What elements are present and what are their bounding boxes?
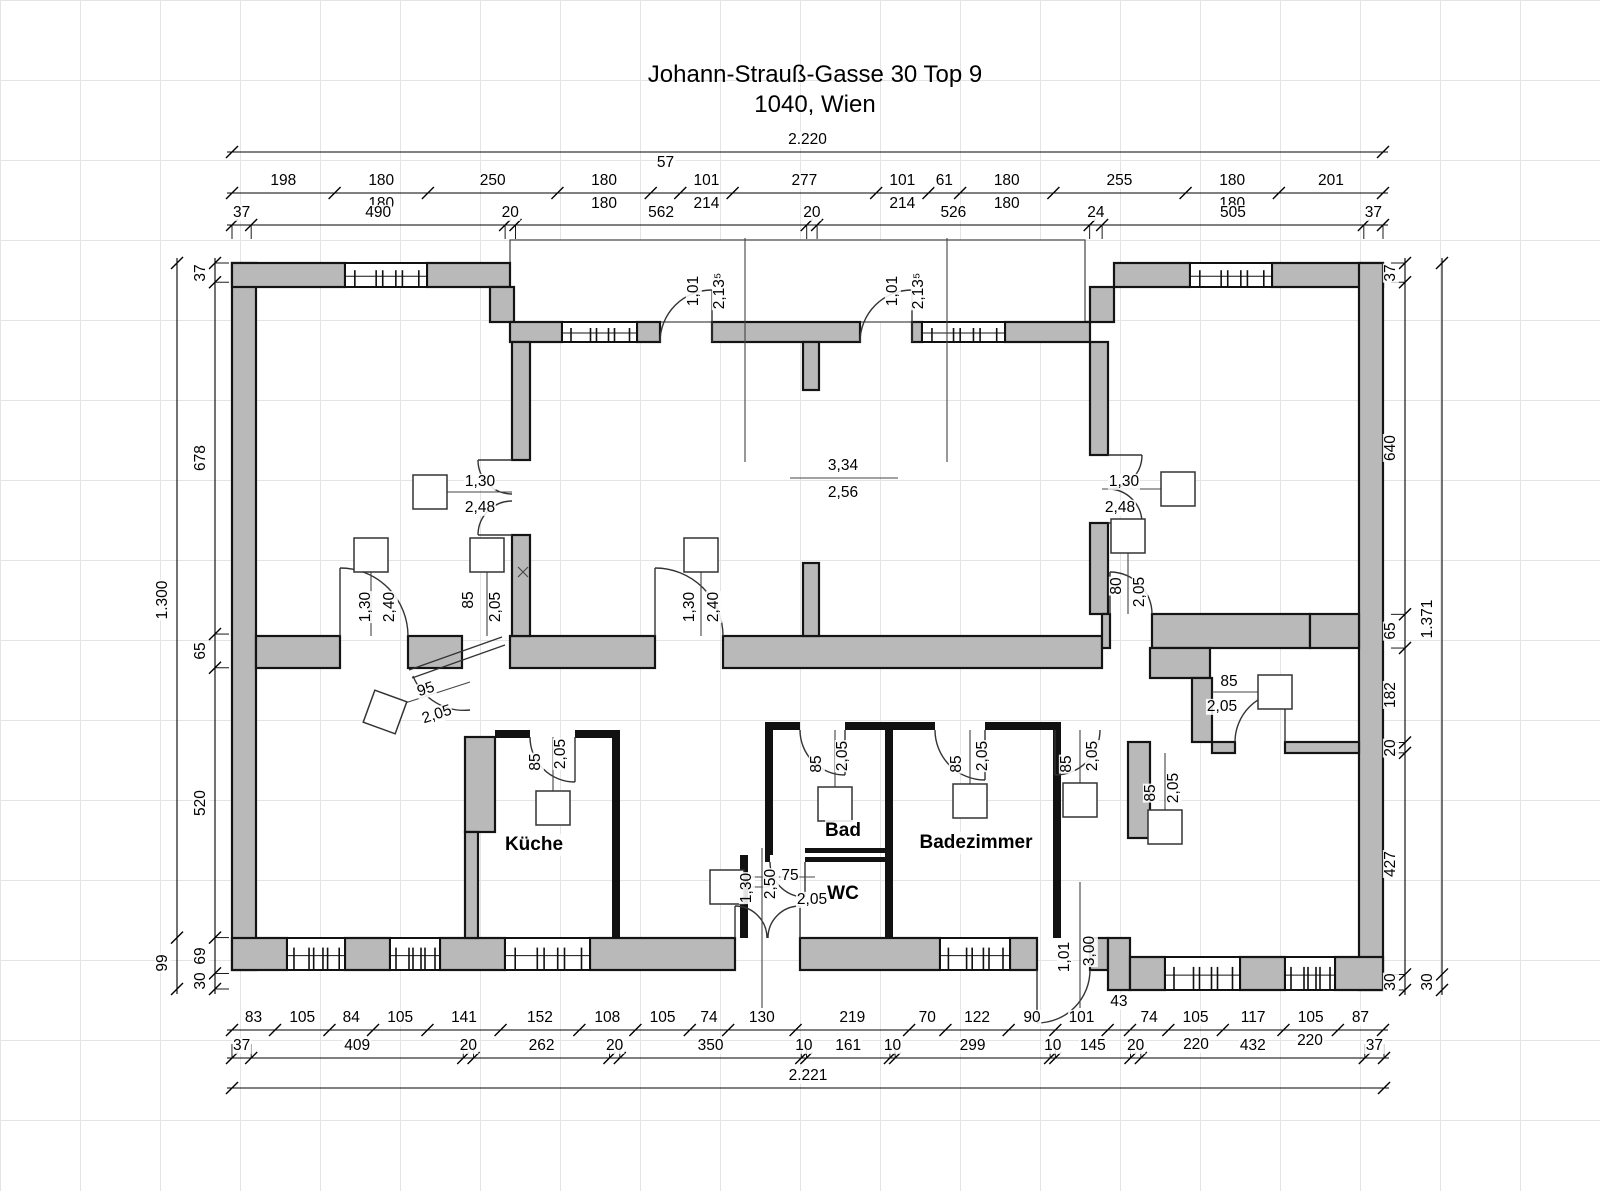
door-symbol-squares-layer bbox=[354, 472, 1292, 904]
annotation-label: 2,05 bbox=[975, 740, 991, 772]
annotation-label: 2,05 bbox=[1085, 740, 1101, 772]
dimension-label: 427 bbox=[1383, 850, 1399, 878]
annotation-label: 2,50 bbox=[763, 868, 779, 900]
door-symbol-square bbox=[413, 475, 447, 509]
dimension-label: 74 bbox=[1140, 1010, 1159, 1026]
annotation-label: 220 bbox=[1296, 1033, 1324, 1049]
dimension-label: 10 bbox=[883, 1038, 902, 1054]
dimension-label: 250 bbox=[479, 173, 507, 189]
dimension-label: 20 bbox=[1126, 1038, 1145, 1054]
dimension-label: 70 bbox=[918, 1010, 937, 1026]
dimension-label: 90 bbox=[1022, 1010, 1041, 1026]
dimension-label: 108 bbox=[593, 1010, 621, 1026]
dimension-label: 180 bbox=[367, 173, 395, 189]
annotation-label: 80 bbox=[1109, 576, 1125, 595]
annotation-label: 1,01 bbox=[1057, 941, 1073, 973]
dimension-label: 490 bbox=[364, 205, 392, 221]
annotation-label: 1,30 bbox=[358, 591, 374, 623]
window-symbol bbox=[390, 938, 440, 970]
door-symbol-square bbox=[1111, 519, 1145, 553]
annotation-label: 85 bbox=[528, 752, 544, 771]
dimension-label: 432 bbox=[1239, 1038, 1267, 1054]
dimension-label: 105 bbox=[1182, 1010, 1210, 1026]
annotation-label: 2,05 bbox=[1166, 772, 1182, 804]
annotation-label: 2,48 bbox=[464, 500, 496, 516]
door-symbol-square bbox=[1148, 810, 1182, 844]
room-label: Küche bbox=[505, 834, 563, 856]
dimension-label: 105 bbox=[649, 1010, 677, 1026]
annotation-label: 85 bbox=[1143, 783, 1159, 802]
door-swing bbox=[768, 906, 800, 938]
dimension-label: 122 bbox=[963, 1010, 991, 1026]
dimension-label: 30 bbox=[1420, 973, 1436, 992]
dimension-label: 57 bbox=[656, 155, 675, 171]
annotation-label: 2,05 bbox=[796, 892, 828, 908]
plan-title-address: Johann-Strauß-Gasse 30 Top 9 bbox=[648, 60, 982, 90]
dimension-label: 201 bbox=[1317, 173, 1345, 189]
annotation-label: 2,05 bbox=[1132, 576, 1148, 608]
dimension-label: 65 bbox=[193, 641, 209, 660]
dimension-label: 20 bbox=[605, 1038, 624, 1054]
dimension-secondary-label: 214 bbox=[888, 196, 916, 212]
plan-title: Johann-Strauß-Gasse 30 Top 9 1040, Wien bbox=[648, 60, 982, 120]
dimension-label: 1.300 bbox=[155, 580, 171, 621]
annotation-label: 2,05 bbox=[553, 738, 569, 770]
dimension-label: 117 bbox=[1240, 1010, 1267, 1026]
dimension-label: 262 bbox=[528, 1038, 556, 1054]
dimension-label: 101 bbox=[693, 173, 721, 189]
dimension-label: 350 bbox=[697, 1038, 725, 1054]
dimension-secondary-label: 214 bbox=[693, 196, 721, 212]
dimension-label: 10 bbox=[794, 1038, 813, 1054]
annotation-label: 2,05 bbox=[835, 740, 851, 772]
annotation-label: 85 bbox=[461, 590, 477, 609]
door-symbol-square bbox=[1161, 472, 1195, 506]
dimension-label: 505 bbox=[1219, 205, 1247, 221]
dimension-label: 37 bbox=[1383, 263, 1399, 282]
dimension-label: 678 bbox=[193, 444, 209, 472]
dimension-label: 84 bbox=[342, 1010, 361, 1026]
dimension-label: 409 bbox=[343, 1038, 371, 1054]
annotation-label: 1,01 bbox=[885, 275, 901, 307]
dimension-label: 182 bbox=[1383, 681, 1399, 709]
door-symbol-square bbox=[354, 538, 388, 572]
door-symbol-square bbox=[953, 784, 987, 818]
dimension-label: 640 bbox=[1383, 434, 1399, 462]
annotation-label: 1,30 bbox=[739, 872, 755, 904]
dimension-label: 37 bbox=[193, 263, 209, 282]
door-symbol-square bbox=[363, 690, 407, 734]
plan-title-city: 1040, Wien bbox=[648, 90, 982, 120]
window-symbol bbox=[287, 938, 345, 970]
annotation-label: 85 bbox=[949, 754, 965, 773]
dimension-label: 37 bbox=[1364, 205, 1383, 221]
window-symbol bbox=[1190, 263, 1272, 287]
door-symbol-square bbox=[1258, 675, 1292, 709]
dimension-label: 105 bbox=[288, 1010, 316, 1026]
annotation-label: 1,30 bbox=[682, 591, 698, 623]
dimension-label: 37 bbox=[232, 205, 251, 221]
dimension-label: 105 bbox=[1297, 1010, 1325, 1026]
dimension-label: 562 bbox=[647, 205, 675, 221]
annotation-label: 75 bbox=[780, 868, 799, 884]
dimension-label: 24 bbox=[1086, 205, 1105, 221]
dimension-secondary-label: 180 bbox=[590, 196, 618, 212]
dimension-label: 180 bbox=[1218, 173, 1246, 189]
annotation-label: 2,05 bbox=[1206, 699, 1238, 715]
dimension-label: 20 bbox=[1383, 738, 1399, 757]
annotation-label: 2,05 bbox=[488, 591, 504, 623]
annotation-label: 2,13⁵ bbox=[712, 272, 728, 311]
dimension-label: 180 bbox=[590, 173, 618, 189]
dimension-label: 180 bbox=[993, 173, 1021, 189]
dimension-label: 37 bbox=[1365, 1038, 1384, 1054]
dimension-label: 30 bbox=[1383, 973, 1399, 992]
annotation-label: 85 bbox=[1059, 754, 1075, 773]
dimension-label: 99 bbox=[155, 954, 171, 973]
dimension-label: 2.221 bbox=[788, 1068, 829, 1084]
dimension-label: 74 bbox=[699, 1010, 718, 1026]
annotation-label: 1,01 bbox=[686, 275, 702, 307]
dimension-label: 10 bbox=[1043, 1038, 1062, 1054]
dimension-label: 105 bbox=[386, 1010, 414, 1026]
annotation-label: 3,00 bbox=[1082, 935, 1098, 967]
dimension-label: 141 bbox=[450, 1010, 478, 1026]
dimension-label: 1.371 bbox=[1420, 598, 1436, 639]
annotation-label: 2,40 bbox=[382, 591, 398, 623]
annotation-label: 3,34 bbox=[827, 458, 859, 474]
dimension-label: 37 bbox=[232, 1038, 251, 1054]
window-symbol bbox=[940, 938, 1010, 970]
dimension-label: 145 bbox=[1079, 1038, 1107, 1054]
dimension-label: 20 bbox=[802, 205, 821, 221]
window-symbol bbox=[922, 322, 1005, 342]
dimension-label: 65 bbox=[1383, 622, 1399, 641]
dimension-label: 30 bbox=[193, 972, 209, 991]
dimension-label: 43 bbox=[1109, 994, 1128, 1010]
dimension-label: 299 bbox=[959, 1038, 987, 1054]
dimension-label: 20 bbox=[459, 1038, 478, 1054]
room-label: Bad bbox=[825, 820, 861, 842]
dimension-label: 69 bbox=[193, 946, 209, 965]
dimension-label: 87 bbox=[1351, 1010, 1370, 1026]
loggia-outline bbox=[510, 240, 1085, 322]
dimension-label: 61 bbox=[935, 173, 954, 189]
door-symbol-square bbox=[684, 538, 718, 572]
dimension-label: 83 bbox=[244, 1010, 263, 1026]
annotation-label: 220 bbox=[1182, 1037, 1210, 1053]
dimension-label: 130 bbox=[748, 1010, 776, 1026]
dimension-label: 219 bbox=[838, 1010, 866, 1026]
dimension-label: 526 bbox=[939, 205, 967, 221]
window-symbol bbox=[1285, 957, 1335, 990]
room-label: WC bbox=[827, 883, 859, 905]
window-symbol bbox=[562, 322, 637, 342]
annotation-label: 85 bbox=[809, 754, 825, 773]
annotation-label: 2,13⁵ bbox=[911, 272, 927, 311]
dimension-label: 101 bbox=[1068, 1010, 1096, 1026]
door-symbol-square bbox=[470, 538, 504, 572]
dimension-label: 2.220 bbox=[787, 132, 828, 148]
door-symbol-square bbox=[1063, 783, 1097, 817]
dimension-label: 152 bbox=[526, 1010, 554, 1026]
dimension-label: 198 bbox=[269, 173, 297, 189]
door-symbol-square bbox=[536, 791, 570, 825]
annotation-label: 1,30 bbox=[1108, 474, 1140, 490]
annotation-label: 85 bbox=[1219, 674, 1238, 690]
dimension-label: 101 bbox=[888, 173, 916, 189]
door-symbol-square bbox=[818, 787, 852, 821]
dimension-label: 161 bbox=[834, 1038, 862, 1054]
dimension-label: 277 bbox=[790, 173, 818, 189]
annotation-label: 2,48 bbox=[1104, 500, 1136, 516]
dimension-label: 255 bbox=[1106, 173, 1134, 189]
annotation-label: 2,40 bbox=[706, 591, 722, 623]
dimension-secondary-label: 180 bbox=[993, 196, 1021, 212]
walls-layer bbox=[232, 263, 1383, 990]
floorplan-canvas: Johann-Strauß-Gasse 30 Top 9 1040, Wien … bbox=[0, 0, 1600, 1191]
window-symbol bbox=[505, 938, 590, 970]
dimension-label: 20 bbox=[501, 205, 520, 221]
annotation-label: 1,30 bbox=[464, 474, 496, 490]
annotation-label: 2,56 bbox=[827, 485, 859, 501]
window-symbol bbox=[345, 263, 427, 287]
room-label: Badezimmer bbox=[920, 832, 1033, 854]
window-symbol bbox=[1165, 957, 1240, 990]
dimension-label: 520 bbox=[193, 789, 209, 817]
